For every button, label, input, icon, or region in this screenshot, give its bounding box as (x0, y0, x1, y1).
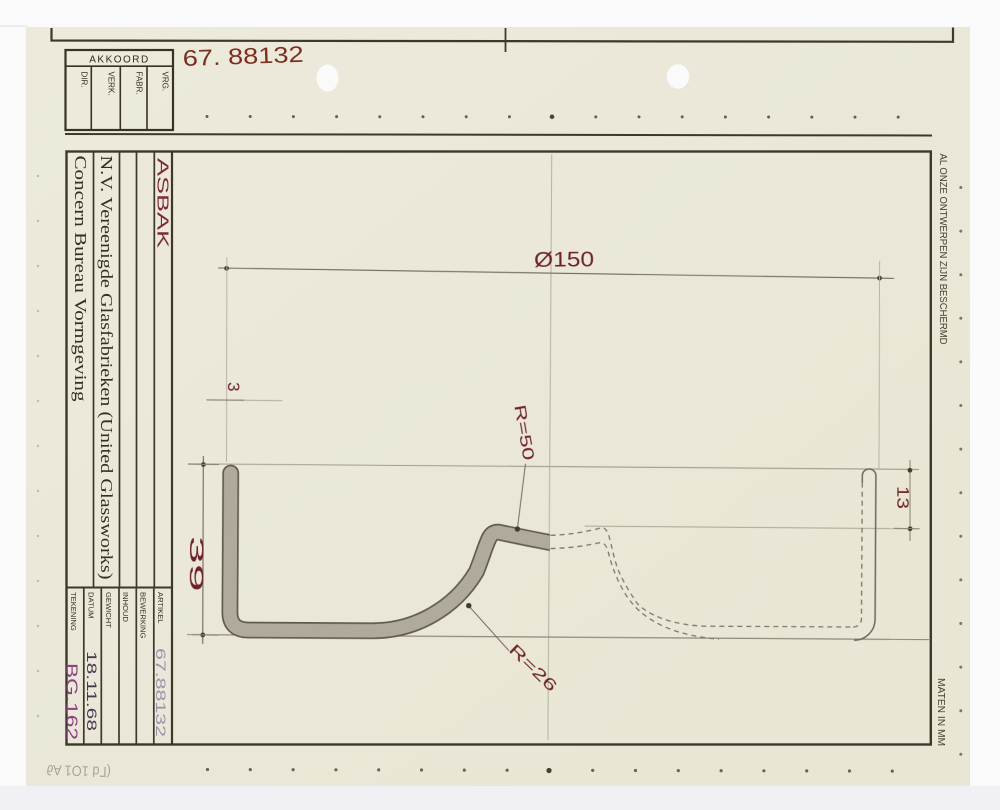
svg-text:67.88132: 67.88132 (153, 648, 168, 737)
svg-text:AKKOORD: AKKOORD (89, 55, 150, 66)
svg-text:67. 88132: 67. 88132 (182, 42, 304, 71)
svg-text:39: 39 (185, 536, 207, 592)
svg-text:3: 3 (224, 382, 243, 392)
svg-text:N.V. Vereenigde Glasfabrieken: N.V. Vereenigde Glasfabrieken (United Gl… (97, 156, 116, 580)
svg-text:(Γd 1O1 A∂: (Γd 1O1 A∂ (47, 761, 112, 779)
svg-text:GEWICHT: GEWICHT (104, 592, 113, 628)
svg-text:ARTIKEL: ARTIKEL (156, 592, 165, 624)
svg-text:ASBAK: ASBAK (154, 158, 171, 249)
svg-text:MATEN IN MM: MATEN IN MM (935, 678, 946, 746)
svg-text:Ø150: Ø150 (534, 248, 594, 272)
svg-text:BEWERKING: BEWERKING (139, 592, 148, 639)
svg-text:BG.162: BG.162 (63, 663, 80, 740)
svg-text:Concern Bureau Vormgeving: Concern Bureau Vormgeving (71, 156, 90, 402)
svg-text:13: 13 (893, 486, 911, 509)
svg-text:DIR.: DIR. (80, 72, 89, 88)
svg-text:VERK.: VERK. (107, 72, 116, 96)
svg-text:INHOUD: INHOUD (121, 592, 130, 622)
svg-text:TEKENING: TEKENING (69, 592, 78, 631)
svg-text:18.11.68: 18.11.68 (84, 651, 100, 731)
svg-text:VRG.: VRG. (161, 72, 170, 92)
svg-text:DATUM: DATUM (87, 592, 96, 618)
svg-text:FABR.: FABR. (135, 72, 144, 95)
svg-text:AL ONZE ONTWERPEN ZIJN BESCHER: AL ONZE ONTWERPEN ZIJN BESCHERMD (937, 154, 948, 345)
